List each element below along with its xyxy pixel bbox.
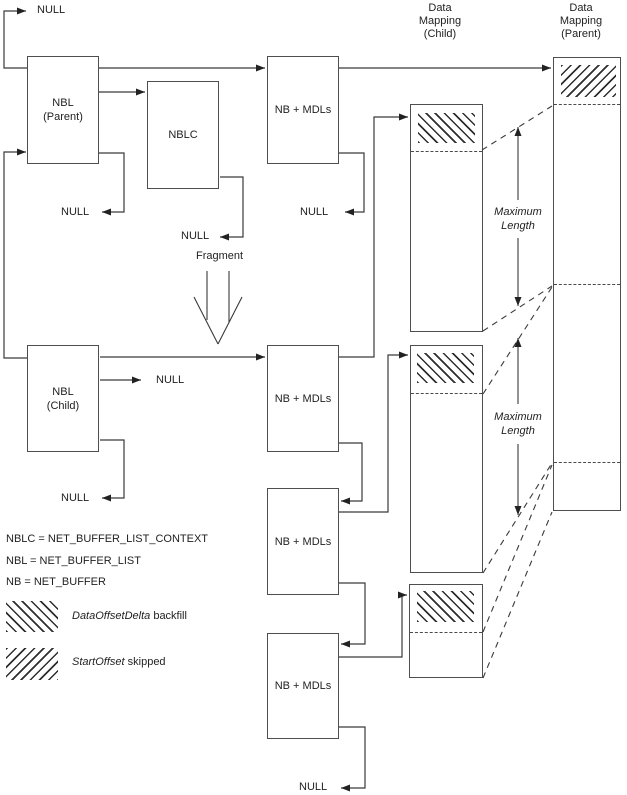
- header-parent-line2: Mapping: [541, 15, 621, 28]
- nb-mdls-parent-box: NB + MDLs: [267, 56, 339, 164]
- nbl-child-label-line1: NBL: [52, 385, 73, 399]
- data-mapping-parent-box: [553, 57, 621, 511]
- connector-nb2-to-mapping2: [339, 355, 408, 512]
- legend-abbrev-nbl: NBL = NET_BUFFER_LIST: [6, 555, 141, 567]
- maximum-length-2-line1: Maximum: [483, 410, 553, 424]
- header-data-mapping-child: Data Mapping (Child): [400, 2, 480, 41]
- parent-dashed-line2: [554, 284, 620, 285]
- backfill-hatch-child2: [417, 353, 474, 383]
- mapping-guide-child2-start: [483, 287, 552, 394]
- header-data-mapping-parent: Data Mapping (Parent): [541, 2, 621, 41]
- nb-mdls-child3-label: NB + MDLs: [275, 679, 332, 693]
- legend-skipped-term: StartOffset: [72, 656, 125, 668]
- mapping-guide-child3-end: [483, 512, 552, 678]
- nbl-parent-box: NBL (Parent): [27, 56, 99, 164]
- connector-nbl-child-to-parent: [4, 152, 27, 358]
- legend-backfill-term: DataOffsetDelta: [72, 610, 150, 622]
- connector-nbl-child-null: [100, 440, 124, 498]
- null-label-nb-child3-next: NULL: [299, 781, 327, 793]
- nblc-box: NBLC: [147, 81, 219, 189]
- nb-mdls-child3-box: NB + MDLs: [267, 633, 339, 739]
- maximum-length-1-line2: Length: [483, 219, 553, 233]
- header-child-line1: Data: [400, 2, 480, 15]
- null-label-nblc-next: NULL: [181, 230, 209, 242]
- connector-nb2-to-nb3: [339, 583, 365, 644]
- nb-mdls-child1-box: NB + MDLs: [267, 345, 339, 452]
- maximum-length-1-line1: Maximum: [483, 205, 553, 219]
- nb-mdls-child2-label: NB + MDLs: [275, 535, 332, 549]
- legend-skipped-rest: skipped: [125, 656, 166, 668]
- ndis-fragment-diagram: Data Mapping (Child) Data Mapping (Paren…: [0, 0, 627, 795]
- data-mapping-child1-box: [410, 104, 483, 332]
- parent-dashed-line3: [554, 462, 620, 463]
- header-child-line2: Mapping: [400, 15, 480, 28]
- nblc-label: NBLC: [168, 128, 197, 142]
- maximum-length-annotation-1: Maximum Length: [483, 205, 553, 233]
- legend-abbrev-nb: NB = NET_BUFFER: [6, 576, 106, 588]
- nb-mdls-child2-box: NB + MDLs: [267, 488, 339, 595]
- fragment-arrow-head-right: [218, 297, 242, 344]
- startoffset-hatch-parent: [561, 65, 616, 97]
- null-label-nb-parent-next: NULL: [300, 206, 328, 218]
- nbl-parent-label-line2: (Parent): [43, 110, 83, 124]
- mapping-guide-child2-end: [483, 463, 552, 573]
- data-mapping-child3-box: [409, 584, 483, 678]
- null-label-parent-prev: NULL: [37, 4, 65, 16]
- legend-backfill-swatch: [6, 601, 58, 632]
- mapping-guide-child1-start: [482, 106, 552, 150]
- legend-skipped-label: StartOffset skipped: [72, 656, 166, 668]
- nbl-child-box: NBL (Child): [27, 345, 99, 452]
- null-label-child-child: NULL: [61, 492, 89, 504]
- fragment-arrow-head-left: [194, 297, 218, 344]
- null-label-child-next: NULL: [156, 374, 184, 386]
- connector-nblc-null: [220, 177, 243, 237]
- nb-mdls-child1-label: NB + MDLs: [275, 392, 332, 406]
- header-parent-line3: (Parent): [541, 28, 621, 41]
- nbl-child-label-line2: (Child): [47, 399, 79, 413]
- legend-backfill-label: DataOffsetDelta backfill: [72, 610, 187, 622]
- parent-dashed-line1: [554, 104, 620, 105]
- offset-dashed-line-child2: [411, 393, 482, 394]
- connector-nb1-to-nb2: [339, 443, 362, 501]
- maximum-length-2-line2: Length: [483, 424, 553, 438]
- null-label-parent-child: NULL: [61, 206, 89, 218]
- nb-mdls-parent-label: NB + MDLs: [275, 103, 332, 117]
- connector-nbl-parent-null: [99, 153, 124, 212]
- mapping-guides: [482, 106, 552, 678]
- maximum-length-annotation-2: Maximum Length: [483, 410, 553, 438]
- offset-dashed-line-child1: [411, 151, 482, 152]
- legend-backfill-rest: backfill: [150, 610, 187, 622]
- connector-nb1-to-mapping1: [339, 117, 408, 357]
- header-child-line3: (Child): [400, 28, 480, 41]
- connector-nb3-to-mapping3: [339, 595, 407, 657]
- backfill-hatch-child3: [417, 591, 474, 622]
- connector-nbl-parent-prev-null: [4, 11, 27, 68]
- mapping-guide-child1-end: [483, 286, 552, 331]
- nbl-parent-label-line1: NBL: [52, 96, 73, 110]
- mapping-guide-child3-start: [483, 465, 552, 632]
- header-parent-line1: Data: [541, 2, 621, 15]
- offset-dashed-line-child3: [410, 632, 482, 633]
- backfill-hatch-child1: [418, 113, 475, 143]
- data-mapping-child2-box: [410, 345, 483, 573]
- fragment-arrow-icon: [194, 271, 242, 344]
- fragment-label: Fragment: [196, 250, 243, 262]
- connector-nb3-null: [339, 727, 365, 788]
- legend-skipped-swatch: [6, 648, 58, 680]
- connector-nb-parent-null: [339, 153, 364, 212]
- legend-abbrev-nblc: NBLC = NET_BUFFER_LIST_CONTEXT: [6, 533, 208, 545]
